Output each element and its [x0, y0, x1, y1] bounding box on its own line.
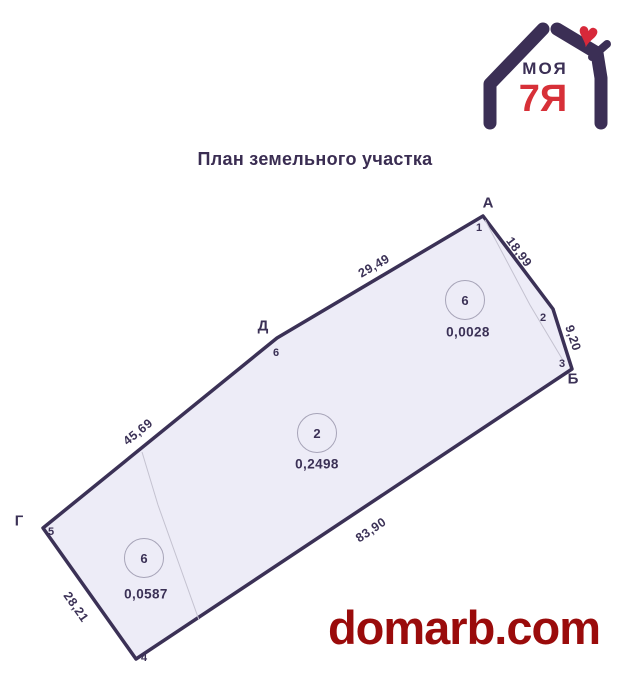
watermark-url: domarb.com — [328, 600, 600, 655]
point-label-5: 5 — [48, 526, 54, 538]
parcel-number: 6 — [140, 551, 147, 566]
parcel-circle-2: 2 — [297, 413, 337, 453]
vertex-label-a: А — [483, 195, 494, 212]
parcel-circle-1: 6 — [445, 280, 485, 320]
parcel-circle-3: 6 — [124, 538, 164, 578]
vertex-label-b: Б — [568, 371, 579, 388]
point-label-2: 2 — [540, 312, 546, 324]
point-label-6: 6 — [273, 347, 279, 359]
land-plot-drawing — [0, 0, 630, 673]
vertex-label-d: Д — [258, 318, 269, 335]
parcel-area-2: 0,2498 — [295, 457, 339, 472]
parcel-area-1: 0,0028 — [446, 325, 490, 340]
vertex-label-g: Г — [15, 513, 24, 530]
point-label-1: 1 — [476, 222, 482, 234]
parcel-number: 2 — [313, 426, 320, 441]
parcel-number: 6 — [461, 293, 468, 308]
parcel-area-3: 0,0587 — [124, 587, 168, 602]
point-label-3: 3 — [559, 358, 565, 370]
point-label-4: 4 — [141, 652, 147, 664]
